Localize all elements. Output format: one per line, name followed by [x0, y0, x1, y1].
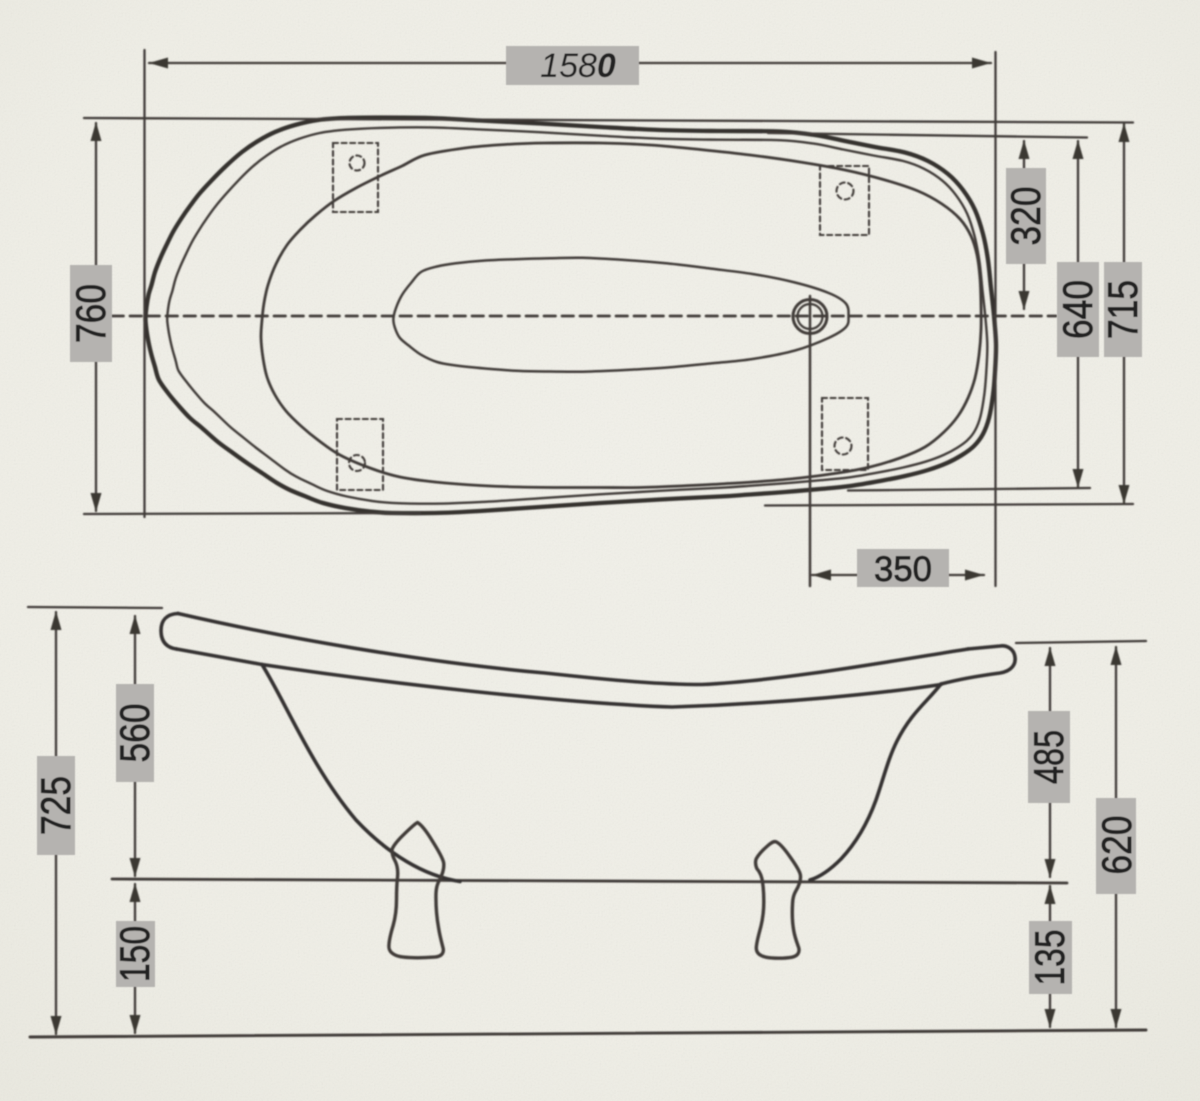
- svg-text:485: 485: [1025, 730, 1072, 784]
- svg-text:320: 320: [1002, 187, 1049, 246]
- svg-text:560: 560: [111, 704, 158, 763]
- svg-text:760: 760: [67, 284, 114, 343]
- svg-text:150: 150: [111, 926, 158, 982]
- svg-text:350: 350: [874, 550, 932, 589]
- svg-text:135: 135: [1026, 930, 1073, 986]
- svg-text:640: 640: [1054, 280, 1101, 339]
- svg-text:725: 725: [32, 776, 79, 835]
- svg-text:620: 620: [1093, 816, 1140, 875]
- svg-text:1580: 1580: [540, 47, 616, 85]
- svg-text:715: 715: [1099, 280, 1146, 339]
